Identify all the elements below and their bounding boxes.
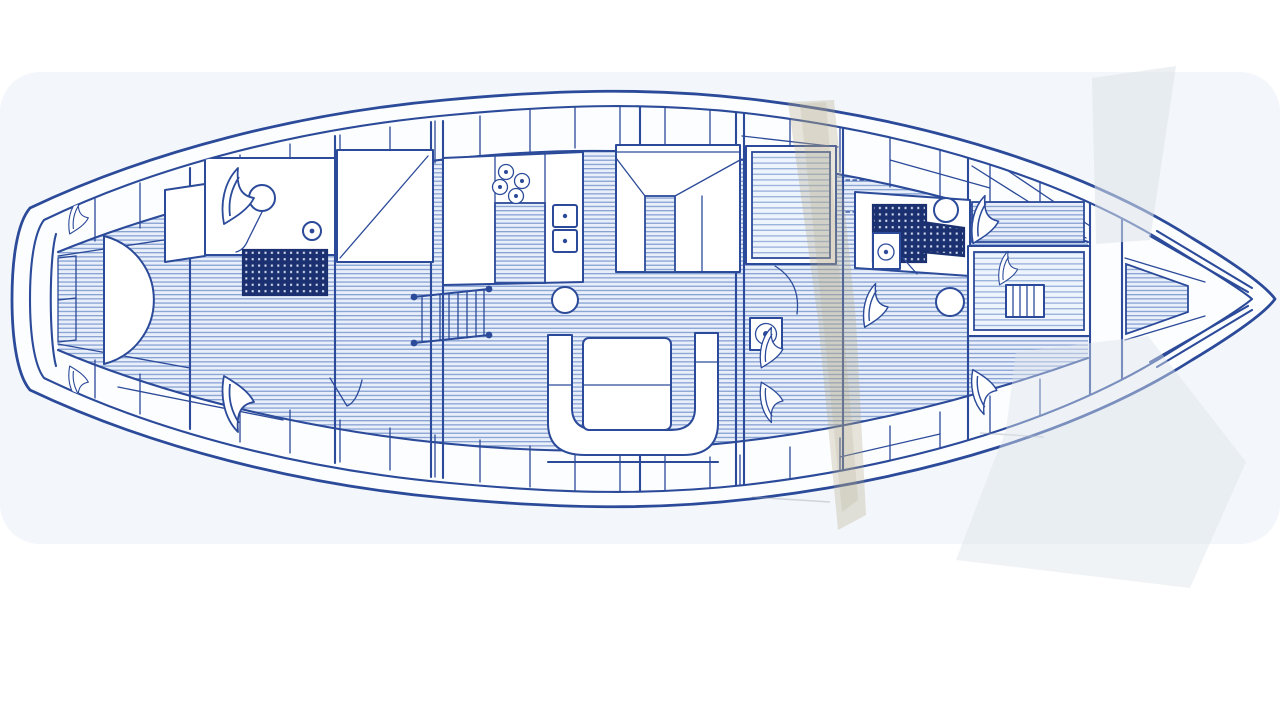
steps-frame	[1006, 285, 1044, 317]
fwd-shower-grating-2	[922, 222, 964, 256]
burner-dot	[514, 194, 518, 198]
sink-drain	[563, 239, 567, 243]
dinette	[616, 145, 740, 272]
fwd-toilet-icon	[934, 198, 958, 222]
forward-head	[855, 192, 970, 276]
sink-drain	[563, 214, 567, 218]
fwd-sink-drain	[884, 250, 888, 254]
aft-shower-grating	[243, 250, 327, 295]
dinette-sole-strip	[645, 196, 675, 272]
burner-dot	[504, 170, 508, 174]
ladder-post	[486, 332, 493, 339]
burner-dot	[520, 179, 524, 183]
mast-pedestal	[552, 287, 578, 313]
ladder-post	[411, 294, 418, 301]
fwd-steps	[1006, 285, 1044, 317]
burner-dot	[498, 185, 502, 189]
galley-sole-patch	[495, 203, 545, 283]
ladder-post	[411, 340, 418, 347]
yacht-deck-plan-drawing: Scanned blueprint-style top-view interio…	[0, 0, 1280, 720]
stern-cabinet	[165, 184, 205, 262]
aft-sink-drain	[310, 229, 315, 234]
fwd-basin	[936, 288, 964, 316]
salon-table	[583, 338, 671, 430]
scanned-deck-plan-page: Scanned blueprint-style top-view interio…	[0, 0, 1280, 720]
ladder-post	[486, 286, 493, 293]
dinette-unit	[616, 145, 740, 272]
